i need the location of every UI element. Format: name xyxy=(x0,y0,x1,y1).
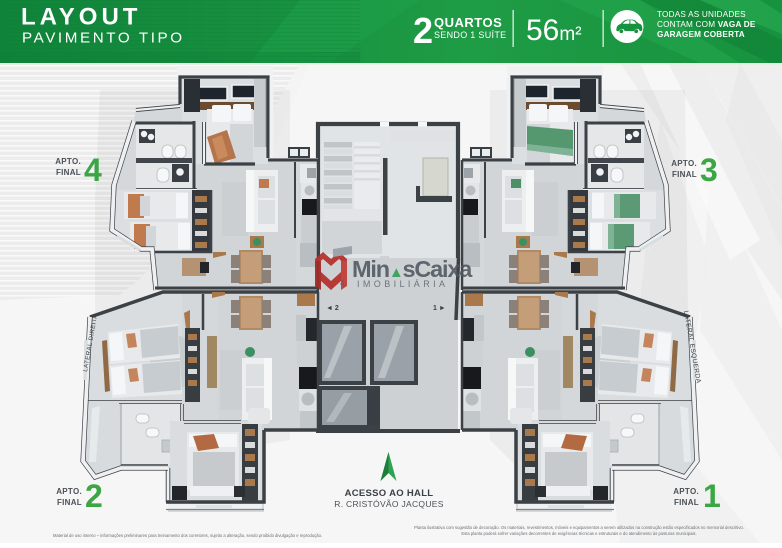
svg-text:4: 4 xyxy=(84,152,102,188)
svg-text:Material de uso interno – info: Material de uso interno – informações pr… xyxy=(53,533,322,538)
svg-text:1: 1 xyxy=(703,478,721,514)
svg-text:4: 4 xyxy=(340,278,345,288)
svg-text:FINAL: FINAL xyxy=(57,498,82,507)
svg-text:APTO.: APTO. xyxy=(673,487,699,496)
svg-text:APTO.: APTO. xyxy=(671,159,697,168)
svg-text:2: 2 xyxy=(413,10,433,51)
svg-text:FINAL: FINAL xyxy=(674,498,699,507)
svg-text:◄ 2: ◄ 2 xyxy=(326,305,339,312)
svg-text:IMOBILIÁRIA: IMOBILIÁRIA xyxy=(357,279,448,289)
svg-text:Esta planta poderá sofrer vari: Esta planta poderá sofrer variações deco… xyxy=(461,531,696,536)
svg-text:APTO.: APTO. xyxy=(55,157,81,166)
svg-text:APTO.: APTO. xyxy=(56,487,82,496)
svg-text:LAYOUT: LAYOUT xyxy=(21,4,141,31)
svg-text:QUARTOS: QUARTOS xyxy=(434,15,502,30)
svg-text:FINAL: FINAL xyxy=(56,168,81,177)
svg-text:FINAL: FINAL xyxy=(672,170,697,179)
svg-text:3: 3 xyxy=(700,152,718,188)
svg-text:2: 2 xyxy=(85,478,103,514)
svg-text:GARAGEM COBERTA: GARAGEM COBERTA xyxy=(657,30,745,39)
svg-text:TODAS AS UNIDADES: TODAS AS UNIDADES xyxy=(657,10,746,19)
svg-text:R. CRISTÓVÃO JACQUES: R. CRISTÓVÃO JACQUES xyxy=(334,499,443,509)
svg-text:ACESSO AO HALL: ACESSO AO HALL xyxy=(345,488,434,499)
svg-text:SENDO 1 SUÍTE: SENDO 1 SUÍTE xyxy=(434,30,506,40)
svg-text:CONTAM COM VAGA DE: CONTAM COM VAGA DE xyxy=(657,20,756,29)
svg-text:PAVIMENTO TIPO: PAVIMENTO TIPO xyxy=(22,30,185,47)
svg-text:Planta ilustrativa com sugestã: Planta ilustrativa com sugestão de decor… xyxy=(414,525,744,530)
svg-text:1 ►: 1 ► xyxy=(433,305,446,312)
